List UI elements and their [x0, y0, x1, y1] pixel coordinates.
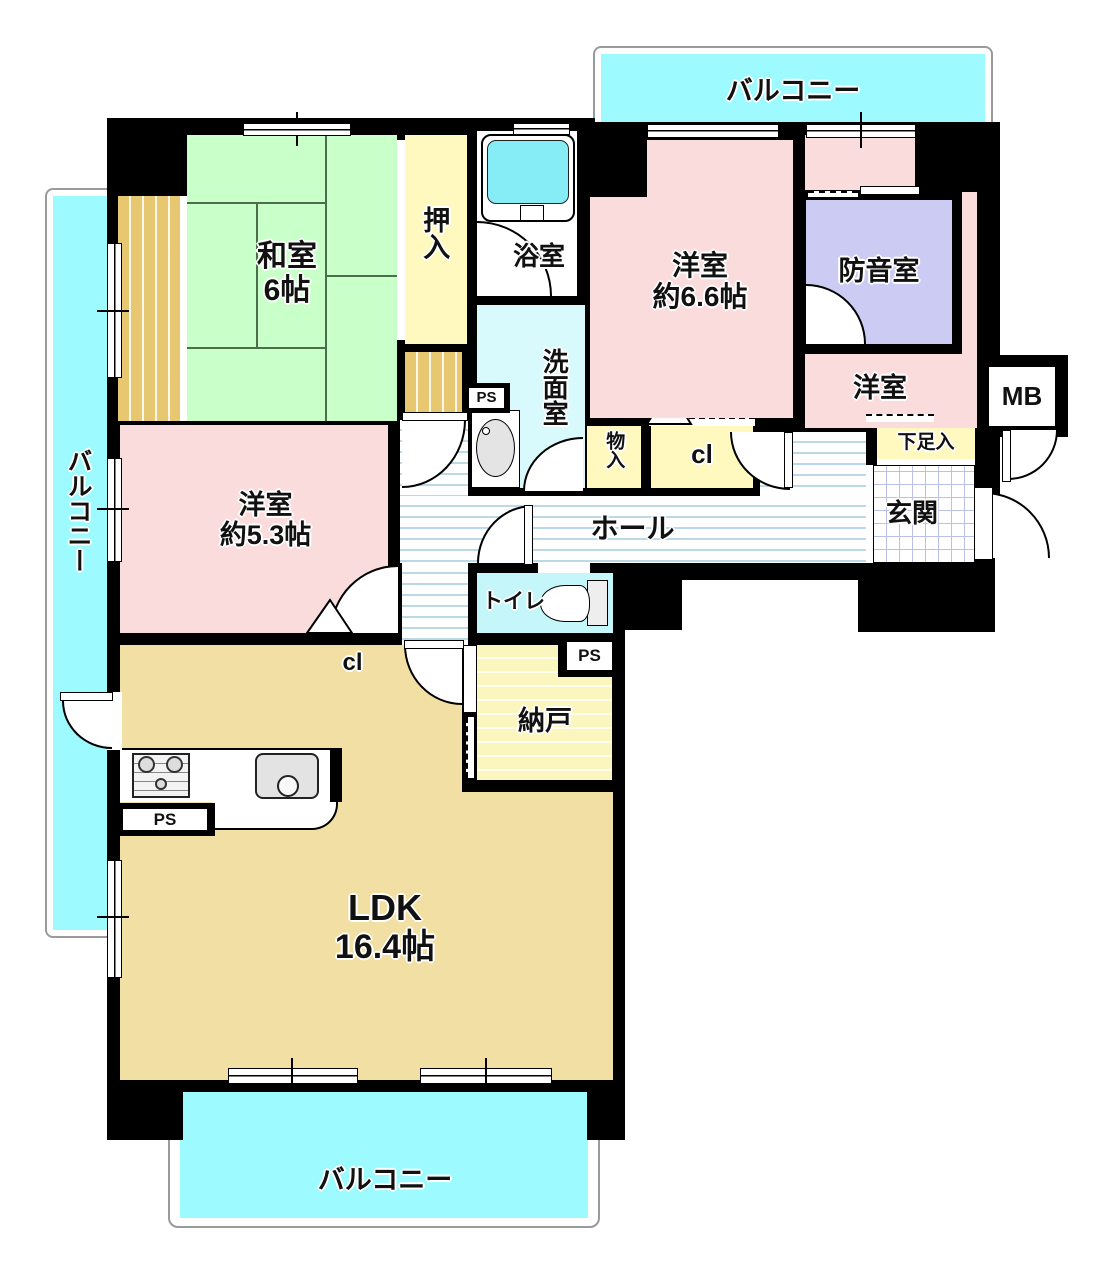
- toilet-bowl-icon: [540, 585, 590, 622]
- nando-door-leaf: [463, 645, 477, 713]
- entrance-door-arc: [984, 492, 1050, 558]
- washroom-label: 洗面室: [539, 348, 568, 426]
- window: [228, 1068, 358, 1084]
- ps-label: PS: [154, 810, 177, 829]
- soundproof-opening-dashes: [808, 191, 858, 197]
- yoshitsu-right-label: 洋室: [820, 373, 940, 403]
- balcony-left-label: バルコニー: [64, 448, 92, 573]
- sink-faucet-dot: [482, 427, 490, 435]
- stove-burner: [155, 778, 167, 790]
- wall-pillar-right: [587, 1073, 625, 1140]
- balcony-top-label: バルコニー: [693, 76, 893, 106]
- wall-pillar-left: [107, 1073, 183, 1140]
- balcony-door-leaf: [60, 692, 113, 701]
- balcony-bottom: [180, 1078, 588, 1218]
- room-hall: [402, 563, 468, 647]
- wood-veranda-right: [405, 352, 462, 421]
- window: [243, 123, 351, 136]
- nando-label: 納戸: [490, 706, 600, 736]
- window-tick: [485, 1058, 487, 1092]
- meter-box-door-leaf: [1002, 430, 1011, 482]
- window: [647, 124, 779, 138]
- window-tick: [291, 1058, 293, 1092]
- window-tick: [97, 916, 129, 918]
- room-ldk: [462, 792, 613, 1080]
- meter-box-door-arc: [1008, 430, 1058, 480]
- closet-door-triangle: [306, 597, 353, 634]
- door-leaf: [784, 432, 793, 488]
- oshiire-label: 押入: [419, 206, 449, 260]
- meter-box: MB: [988, 366, 1056, 427]
- stove-burner: [166, 756, 183, 773]
- window-tick: [97, 310, 129, 312]
- step-dashed-line: [866, 414, 934, 422]
- wall-corner-block: [613, 555, 682, 630]
- soundproof-window: [860, 186, 920, 195]
- shoji-door: [180, 196, 187, 421]
- yoshitsu53-size: 約5.3帖: [178, 520, 353, 550]
- kitchen-sink-drain: [277, 775, 299, 797]
- balcony-bottom-label: バルコニー: [285, 1165, 485, 1195]
- ps-label: PS: [578, 646, 601, 665]
- pipe-space: PS: [468, 387, 505, 409]
- wood-veranda-left: [118, 196, 180, 421]
- ldk-label: LDK 16.4帖: [290, 888, 480, 966]
- oshiire-sliding-door: [397, 140, 405, 340]
- wall-notch: [585, 122, 647, 197]
- door-leaf: [524, 505, 533, 565]
- door-leaf: [402, 412, 468, 421]
- ps-label: PS: [476, 390, 496, 407]
- window-tick: [860, 112, 862, 148]
- getabako-label: 下足入: [877, 432, 975, 453]
- bathtub-step: [520, 205, 544, 221]
- window: [513, 123, 570, 135]
- stove-burner: [138, 756, 155, 773]
- monoire-label: 物入: [603, 431, 624, 469]
- washitsu-name: 和室: [212, 240, 362, 274]
- room-ldk: [120, 645, 462, 1080]
- window-tick: [97, 508, 129, 510]
- yoshitsu53-label: 洋室 約5.3帖: [178, 490, 353, 550]
- washitsu-size: 6帖: [212, 274, 362, 308]
- yoshitsu53-name: 洋室: [178, 490, 353, 520]
- washitsu-label: 和室 6帖: [212, 240, 362, 307]
- toilet-tank-icon: [587, 580, 608, 626]
- kitchen-counter-end: [330, 748, 342, 802]
- window: [107, 860, 122, 978]
- toilet-door-gap: [538, 563, 590, 573]
- window: [107, 458, 122, 562]
- yoshitsu66-name: 洋室: [615, 250, 785, 281]
- pipe-space: PS: [122, 808, 208, 831]
- meter-box-label: MB: [1002, 382, 1042, 411]
- bouon-label: 防音室: [805, 256, 953, 286]
- closet-upper-label: cl: [662, 440, 742, 469]
- hall-label: ホール: [550, 513, 715, 544]
- ldk-size: 16.4帖: [290, 928, 480, 966]
- genkan-label: 玄関: [862, 499, 962, 528]
- ldk-door-leaf: [404, 640, 464, 649]
- floor-plan: MB PS PS PS: [0, 0, 1112, 1280]
- ldk-name: LDK: [290, 888, 480, 928]
- closet-lower-label: cl: [315, 650, 390, 677]
- kitchen-counter-return: [212, 802, 338, 830]
- nando-folding-door-dashes: [466, 717, 474, 778]
- pipe-space: PS: [566, 641, 613, 671]
- wall-notch: [915, 122, 977, 192]
- bathtub-water: [487, 140, 569, 204]
- bath-label: 浴室: [489, 242, 589, 271]
- yoshitsu66-label: 洋室 約6.6帖: [615, 250, 785, 313]
- entrance-door-leaf: [974, 487, 993, 560]
- yoshitsu66-size: 約6.6帖: [615, 281, 785, 312]
- toilet-label: トイレ: [482, 590, 545, 614]
